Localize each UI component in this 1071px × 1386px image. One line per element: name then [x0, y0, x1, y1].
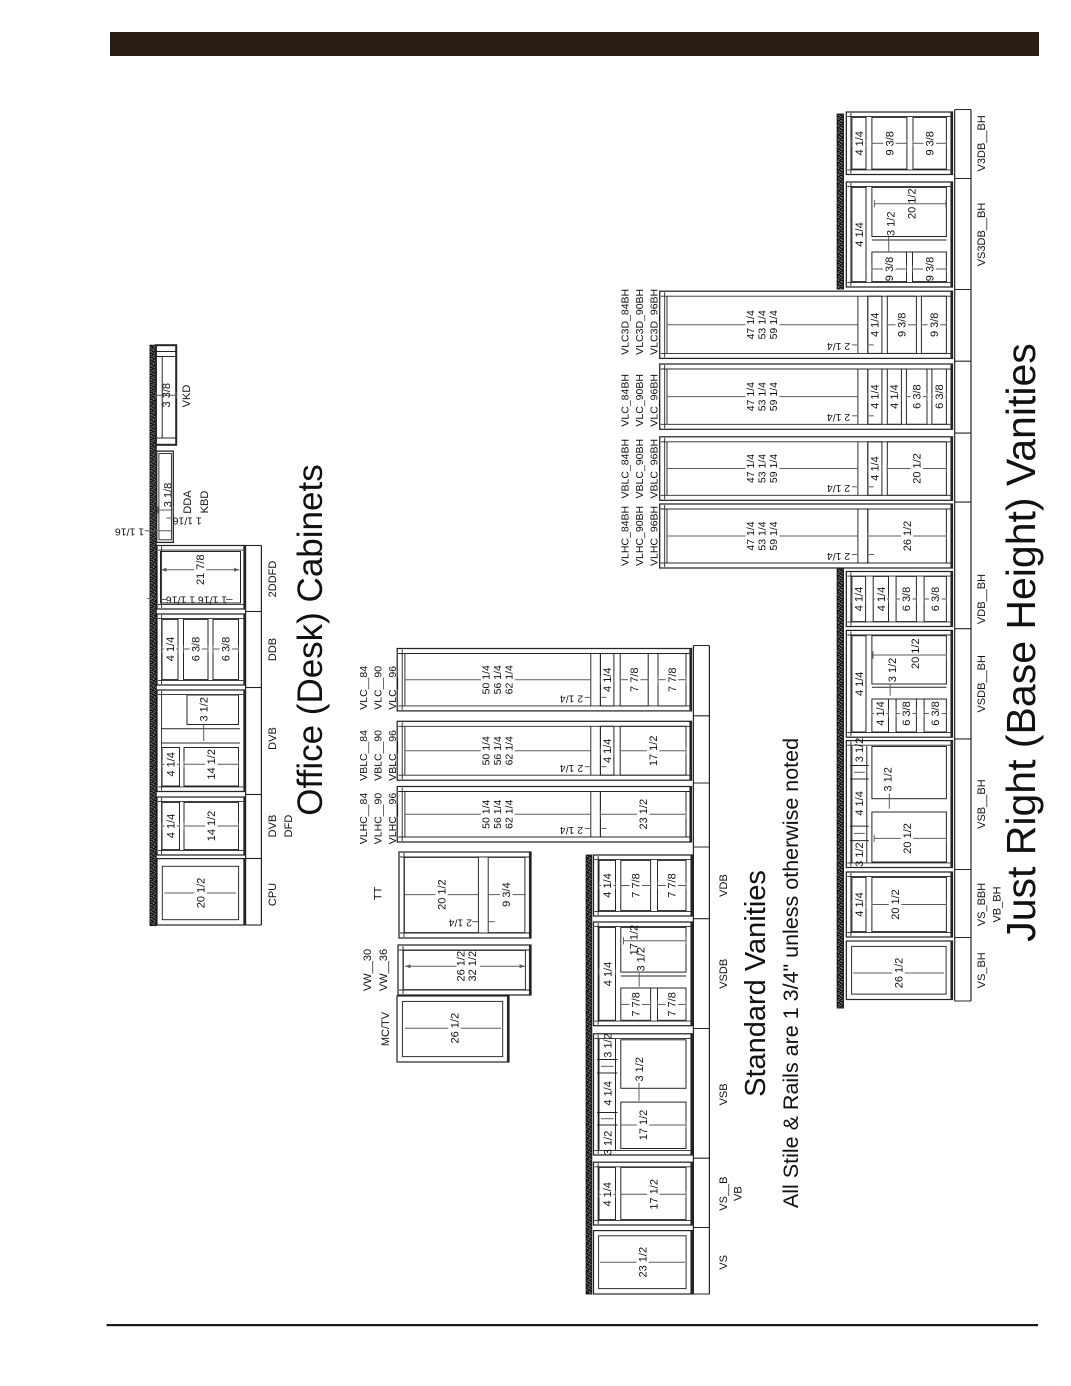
svg-text:9 3/4: 9 3/4: [501, 882, 513, 906]
svg-text:VKD: VKD: [181, 385, 193, 408]
svg-text:2DDFD: 2DDFD: [267, 561, 279, 598]
svg-text:VW__36: VW__36: [378, 949, 390, 991]
svg-text:DVB: DVB: [267, 815, 279, 838]
svg-text:DVB: DVB: [267, 727, 279, 750]
svg-text:MC/TV: MC/TV: [380, 1011, 392, 1046]
svg-text:VLC3D_90BH: VLC3D_90BH: [634, 289, 646, 355]
svg-text:VLC__84: VLC__84: [358, 666, 370, 710]
svg-text:62 1/4: 62 1/4: [504, 736, 516, 765]
svg-text:4 1/4: 4 1/4: [854, 791, 866, 815]
svg-text:53 1/4: 53 1/4: [757, 382, 769, 411]
svg-text:VLHC_90BH: VLHC_90BH: [634, 506, 646, 566]
svg-text:1 1/16: 1 1/16: [172, 515, 201, 527]
svg-text:47 1/4: 47 1/4: [745, 310, 757, 339]
svg-text:VLC3D_96BH: VLC3D_96BH: [649, 289, 661, 355]
svg-text:VBLC__84: VBLC__84: [358, 730, 370, 781]
svg-text:20 1/2: 20 1/2: [890, 889, 902, 920]
svg-text:20 1/2: 20 1/2: [912, 453, 924, 484]
svg-text:6 3/8: 6 3/8: [221, 637, 233, 661]
svg-text:3 1/2: 3 1/2: [636, 947, 648, 971]
svg-text:VBLC__96: VBLC__96: [387, 730, 399, 781]
svg-text:2 1/4: 2 1/4: [448, 917, 472, 929]
svg-text:23 1/2: 23 1/2: [638, 799, 650, 830]
svg-text:DFD: DFD: [283, 815, 295, 838]
svg-text:DDB: DDB: [267, 638, 279, 661]
svg-text:VBLC__90: VBLC__90: [373, 730, 385, 781]
svg-text:4 1/4: 4 1/4: [602, 667, 614, 691]
svg-text:20 1/2: 20 1/2: [437, 879, 449, 910]
svg-text:VBLC_84BH: VBLC_84BH: [620, 439, 632, 499]
svg-text:VSB: VSB: [718, 1083, 730, 1105]
svg-text:VSDB: VSDB: [718, 959, 730, 989]
svg-text:9 3/8: 9 3/8: [929, 313, 941, 337]
svg-text:7 7/8: 7 7/8: [667, 992, 679, 1016]
svg-text:VSDB__BH: VSDB__BH: [976, 655, 988, 713]
svg-text:47 1/4: 47 1/4: [745, 382, 757, 411]
svg-text:50 1/4: 50 1/4: [481, 799, 493, 828]
svg-text:9 3/8: 9 3/8: [924, 257, 936, 281]
svg-text:2 1/4: 2 1/4: [827, 482, 851, 494]
svg-text:7 7/8: 7 7/8: [631, 873, 643, 897]
svg-text:26 1/2: 26 1/2: [902, 521, 914, 552]
svg-text:4 1/4: 4 1/4: [602, 962, 614, 986]
svg-text:VLHC__90: VLHC__90: [373, 793, 385, 845]
svg-text:50 1/4: 50 1/4: [481, 665, 493, 694]
svg-text:3 1/2: 3 1/2: [883, 767, 895, 791]
svg-text:VS3DB__BH: VS3DB__BH: [976, 203, 988, 267]
svg-text:VLC_96BH: VLC_96BH: [649, 374, 661, 427]
svg-text:6 3/8: 6 3/8: [901, 701, 913, 725]
svg-text:20 1/2: 20 1/2: [907, 188, 919, 219]
svg-text:53 1/4: 53 1/4: [757, 454, 769, 483]
svg-text:62 1/4: 62 1/4: [504, 665, 516, 694]
svg-text:6 3/8: 6 3/8: [912, 384, 924, 408]
svg-text:59 1/4: 59 1/4: [768, 310, 780, 339]
svg-text:1 1/16: 1 1/16: [166, 594, 195, 606]
svg-text:VDB__BH: VDB__BH: [976, 574, 988, 624]
svg-text:VBLC_96BH: VBLC_96BH: [649, 439, 661, 499]
svg-text:9 3/8: 9 3/8: [884, 131, 896, 155]
svg-text:VSB__BH: VSB__BH: [976, 779, 988, 829]
svg-text:21 7/8: 21 7/8: [195, 554, 207, 585]
svg-text:9 3/8: 9 3/8: [884, 257, 896, 281]
svg-text:3 1/2: 3 1/2: [634, 1057, 646, 1081]
svg-text:26 1/2: 26 1/2: [449, 1013, 461, 1044]
svg-text:4 1/4: 4 1/4: [854, 672, 866, 696]
svg-text:3 1/2: 3 1/2: [854, 738, 866, 762]
svg-text:VS_BBH: VS_BBH: [976, 883, 988, 926]
svg-text:6 3/8: 6 3/8: [930, 587, 942, 611]
svg-text:4 1/4: 4 1/4: [876, 587, 888, 611]
svg-text:Standard Vanities: Standard Vanities: [740, 870, 772, 1097]
svg-text:2 1/4: 2 1/4: [827, 550, 851, 562]
svg-text:VB: VB: [733, 1186, 745, 1201]
svg-text:9 3/8: 9 3/8: [897, 313, 909, 337]
svg-text:3 1/2: 3 1/2: [885, 212, 897, 236]
svg-text:VBLC_90BH: VBLC_90BH: [634, 439, 646, 499]
svg-text:4 1/4: 4 1/4: [602, 873, 614, 897]
svg-text:VLC__90: VLC__90: [373, 666, 385, 710]
svg-text:Office (Desk) Cabinets: Office (Desk) Cabinets: [291, 464, 330, 815]
svg-text:VB_BH: VB_BH: [992, 886, 1004, 922]
svg-text:VDB: VDB: [718, 874, 730, 897]
svg-text:56 1/4: 56 1/4: [492, 665, 504, 694]
svg-text:2 1/4: 2 1/4: [827, 340, 851, 352]
svg-text:VLC3D_84BH: VLC3D_84BH: [620, 289, 632, 355]
svg-text:4 1/4: 4 1/4: [889, 384, 901, 408]
svg-text:Just Right (Base Height) Vanit: Just Right (Base Height) Vanities: [998, 343, 1044, 942]
svg-text:4 1/4: 4 1/4: [875, 701, 887, 725]
svg-text:3 1/2: 3 1/2: [887, 658, 899, 682]
svg-text:17 1/2: 17 1/2: [648, 736, 660, 767]
svg-text:47 1/4: 47 1/4: [745, 454, 757, 483]
svg-text:4 1/4: 4 1/4: [870, 313, 882, 337]
svg-text:14 1/2: 14 1/2: [206, 811, 218, 842]
svg-text:V3DB__BH: V3DB__BH: [976, 115, 988, 171]
svg-text:KBD: KBD: [199, 491, 211, 514]
svg-text:VW__30: VW__30: [362, 949, 374, 991]
svg-text:VLC_84BH: VLC_84BH: [620, 374, 632, 427]
svg-text:59 1/4: 59 1/4: [768, 521, 780, 550]
svg-text:59 1/4: 59 1/4: [768, 454, 780, 483]
svg-text:7 7/8: 7 7/8: [667, 873, 679, 897]
svg-text:6 3/8: 6 3/8: [901, 587, 913, 611]
svg-text:4 1/4: 4 1/4: [602, 1182, 614, 1206]
svg-text:VLHC_84BH: VLHC_84BH: [620, 506, 632, 566]
svg-text:32 1/2: 32 1/2: [467, 951, 479, 982]
svg-text:VS_BH: VS_BH: [976, 952, 988, 988]
svg-text:7 7/8: 7 7/8: [667, 667, 679, 691]
svg-text:59 1/4: 59 1/4: [768, 382, 780, 411]
svg-text:VLC_90BH: VLC_90BH: [634, 374, 646, 427]
svg-text:47 1/4: 47 1/4: [745, 521, 757, 550]
svg-text:3 1/8: 3 1/8: [163, 483, 175, 507]
svg-text:7 7/8: 7 7/8: [631, 992, 643, 1016]
svg-text:4 1/4: 4 1/4: [166, 752, 178, 776]
svg-text:20 1/2: 20 1/2: [910, 638, 922, 669]
svg-text:50 1/4: 50 1/4: [481, 736, 493, 765]
svg-text:VLHC_96BH: VLHC_96BH: [649, 506, 661, 566]
svg-text:DDA: DDA: [182, 490, 194, 514]
svg-text:6 3/8: 6 3/8: [191, 637, 203, 661]
svg-text:All Stile & Rails are 1 3/4" u: All Stile & Rails are 1 3/4" unless othe…: [779, 738, 803, 1208]
svg-text:53 1/4: 53 1/4: [757, 310, 769, 339]
svg-text:4 1/4: 4 1/4: [854, 131, 866, 155]
svg-text:3 1/2: 3 1/2: [603, 1033, 615, 1057]
svg-text:62 1/4: 62 1/4: [504, 799, 516, 828]
svg-text:17 1/2: 17 1/2: [648, 1179, 660, 1210]
svg-text:26 1/2: 26 1/2: [456, 951, 468, 982]
svg-text:7 7/8: 7 7/8: [629, 667, 641, 691]
svg-text:56 1/4: 56 1/4: [492, 736, 504, 765]
svg-text:20 1/2: 20 1/2: [196, 878, 208, 909]
svg-text:1 1/16: 1 1/16: [198, 594, 227, 606]
svg-text:4 1/4: 4 1/4: [165, 637, 177, 661]
svg-text:26 1/2: 26 1/2: [893, 958, 905, 989]
svg-text:56 1/4: 56 1/4: [492, 799, 504, 828]
svg-text:2 1/4: 2 1/4: [560, 762, 584, 774]
svg-text:2 1/4: 2 1/4: [560, 693, 584, 705]
svg-text:4 1/4: 4 1/4: [854, 222, 866, 246]
svg-text:20 1/2: 20 1/2: [902, 823, 914, 854]
svg-text:17 1/2: 17 1/2: [638, 1110, 650, 1141]
svg-text:1 1/16: 1 1/16: [115, 526, 144, 538]
svg-text:VLHC__84: VLHC__84: [358, 793, 370, 845]
svg-text:CPU: CPU: [267, 883, 279, 906]
svg-text:2 1/4: 2 1/4: [827, 411, 851, 423]
svg-text:VS: VS: [718, 1255, 730, 1270]
svg-text:4 1/4: 4 1/4: [854, 587, 866, 611]
svg-text:VLC__96: VLC__96: [387, 666, 399, 710]
svg-text:4 1/4: 4 1/4: [602, 739, 614, 763]
svg-text:3 1/2: 3 1/2: [199, 697, 211, 721]
svg-text:3 3/8: 3 3/8: [161, 383, 173, 407]
svg-text:6 3/8: 6 3/8: [930, 701, 942, 725]
svg-text:3 1/2: 3 1/2: [854, 842, 866, 866]
svg-text:9 3/8: 9 3/8: [925, 131, 937, 155]
svg-text:4 1/4: 4 1/4: [166, 814, 178, 838]
svg-text:4 1/4: 4 1/4: [603, 1081, 615, 1105]
svg-text:6 3/8: 6 3/8: [934, 384, 946, 408]
svg-text:4 1/4: 4 1/4: [870, 456, 882, 480]
svg-text:VLHC__96: VLHC__96: [387, 793, 399, 845]
svg-text:14 1/2: 14 1/2: [206, 749, 218, 780]
svg-text:2 1/4: 2 1/4: [560, 824, 584, 836]
svg-text:TT: TT: [372, 886, 384, 900]
svg-text:23 1/2: 23 1/2: [637, 1247, 649, 1278]
svg-text:53 1/4: 53 1/4: [757, 521, 769, 550]
svg-text:VS__B: VS__B: [718, 1176, 730, 1210]
svg-text:4 1/4: 4 1/4: [870, 384, 882, 408]
svg-text:4 1/4: 4 1/4: [854, 892, 866, 916]
svg-text:3 1/2: 3 1/2: [603, 1131, 615, 1155]
